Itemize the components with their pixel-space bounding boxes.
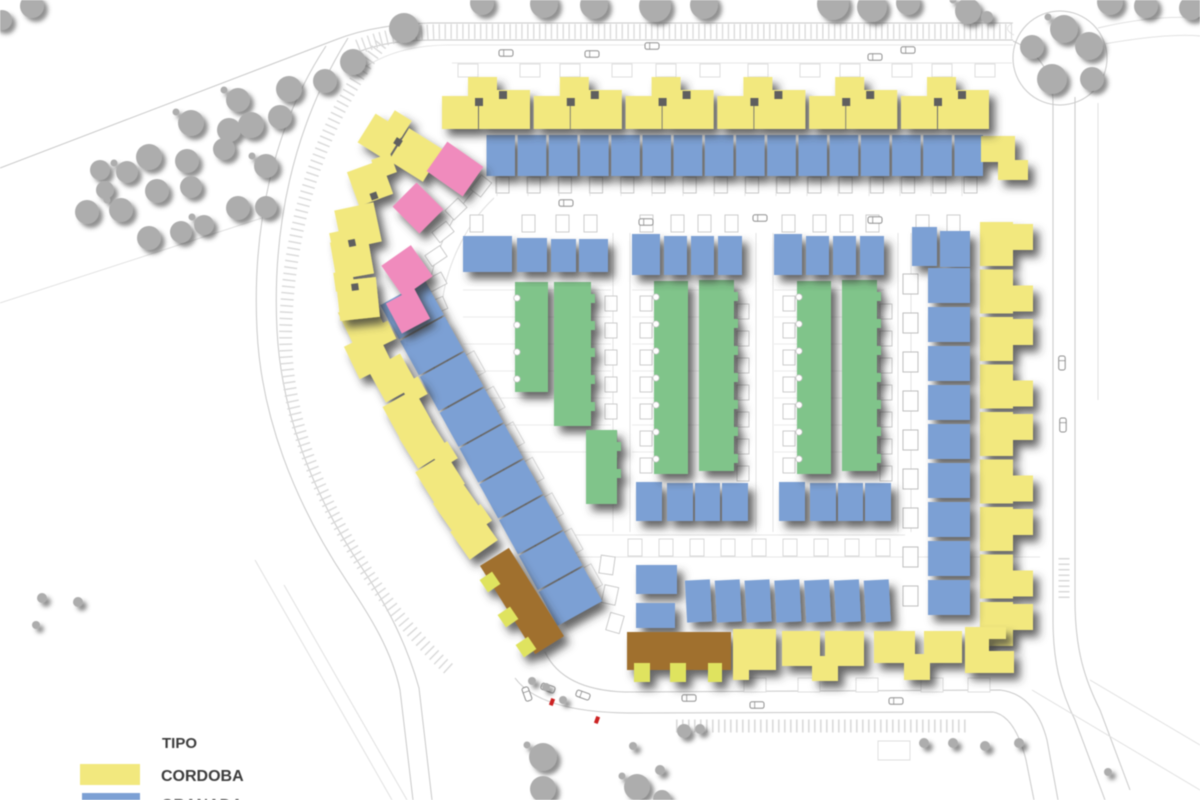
- svg-text:CORDOBA: CORDOBA: [161, 768, 244, 785]
- svg-text:TIPO: TIPO: [162, 735, 197, 752]
